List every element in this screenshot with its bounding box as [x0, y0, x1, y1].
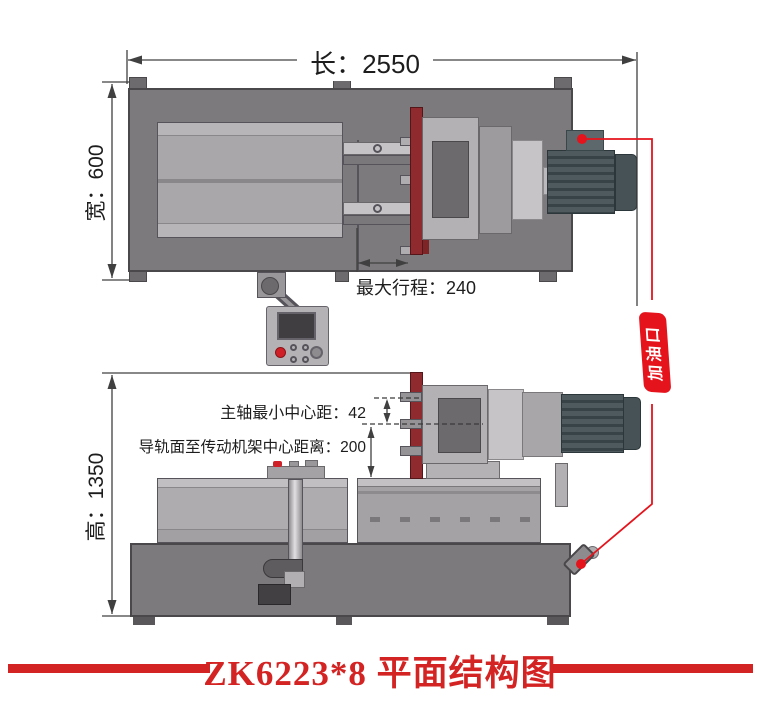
pendant-fitting: [258, 584, 291, 605]
length-dimension-label: 长：2550: [297, 44, 433, 81]
rail-lower-shadow: [343, 215, 419, 225]
bed-tick-2: [400, 517, 410, 522]
max-stroke-label: 最大行程：240: [356, 274, 476, 300]
mount-knob-2: [305, 460, 318, 467]
bed-rail-line: [358, 491, 540, 494]
height-dimension-label: 高：1350: [80, 435, 110, 559]
bed-tick-3: [430, 517, 440, 522]
rail-arrow-down-icon: [368, 466, 375, 477]
diagram-canvas: 长：2550 宽：600 高：1350 最大行程：240 主轴最小中心距：42 …: [0, 0, 760, 707]
front-view-motor-endcap: [623, 397, 641, 450]
height-arrow-up-icon: [108, 375, 117, 389]
front-view-cylinder: [488, 389, 524, 460]
tank-top-band: [158, 479, 347, 488]
height-arrow-down-icon: [108, 600, 117, 614]
coolant-tank: [157, 478, 348, 543]
table-top-band: [158, 123, 342, 136]
front-view-bed: [357, 478, 541, 543]
front-view-cone: [522, 392, 563, 457]
width-arrow-down-icon: [108, 264, 117, 278]
top-view-motor-endcap: [615, 154, 637, 211]
top-view-gearbox: [479, 126, 512, 234]
diagram-title: ZK6223*8 平面结构图: [170, 645, 590, 696]
top-view-headstock-panel: [432, 141, 469, 218]
rail-lower-hole: [373, 204, 382, 213]
bed-end-tab: [555, 463, 568, 507]
bed-tick-4: [460, 517, 470, 522]
pendant-button-3: [290, 356, 297, 363]
bed-top-band: [358, 479, 540, 487]
spindle-min-center-label: 主轴最小中心距：42: [170, 399, 366, 423]
pendant-screen: [277, 312, 316, 340]
width-dimension-label: 宽：600: [80, 121, 110, 245]
rail-upper-shadow: [343, 155, 419, 165]
top-view-motor: [547, 150, 615, 214]
pendant-knuckle: [261, 277, 279, 295]
mount-knob-1: [289, 461, 299, 467]
pendant-button-1: [290, 344, 297, 351]
rail-upper-hole: [373, 144, 382, 153]
oil-filler-tag: 加油口: [639, 312, 672, 394]
front-view-motor: [561, 394, 624, 453]
tank-bottom-band: [158, 529, 347, 542]
top-view-cylinder: [512, 140, 543, 220]
bed-tick-6: [520, 517, 530, 522]
length-arrow-left-icon: [128, 56, 142, 65]
top-view-motor-junction-box: [566, 130, 604, 151]
rail-to-frame-label: 导轨面至传动机架中心距离：200: [134, 435, 366, 457]
spindle-pin-2: [400, 419, 422, 429]
spindle-pin-3: [400, 446, 422, 456]
table-bottom-band: [158, 223, 342, 237]
pendant-column: [288, 479, 303, 566]
bed-tick-1: [370, 517, 380, 522]
spindle-pin-1: [400, 392, 422, 402]
top-view-table: [157, 122, 343, 238]
bed-tick-5: [490, 517, 500, 522]
pendant-dial: [310, 346, 323, 359]
pendant-button-2: [302, 344, 309, 351]
spindle-arrow-down-icon: [384, 413, 391, 423]
table-groove: [158, 179, 342, 183]
pendant-mount-plate: [267, 466, 325, 479]
spindle-arrow-up-icon: [384, 399, 391, 409]
mount-red-button: [273, 461, 282, 467]
front-view-base: [130, 543, 571, 617]
pendant-button-4: [302, 356, 309, 363]
front-view-headstock-panel: [438, 398, 481, 453]
width-arrow-up-icon: [108, 84, 117, 98]
length-arrow-right-icon: [622, 56, 636, 65]
pendant-red-button: [275, 347, 286, 358]
rail-arrow-up-icon: [368, 427, 375, 438]
